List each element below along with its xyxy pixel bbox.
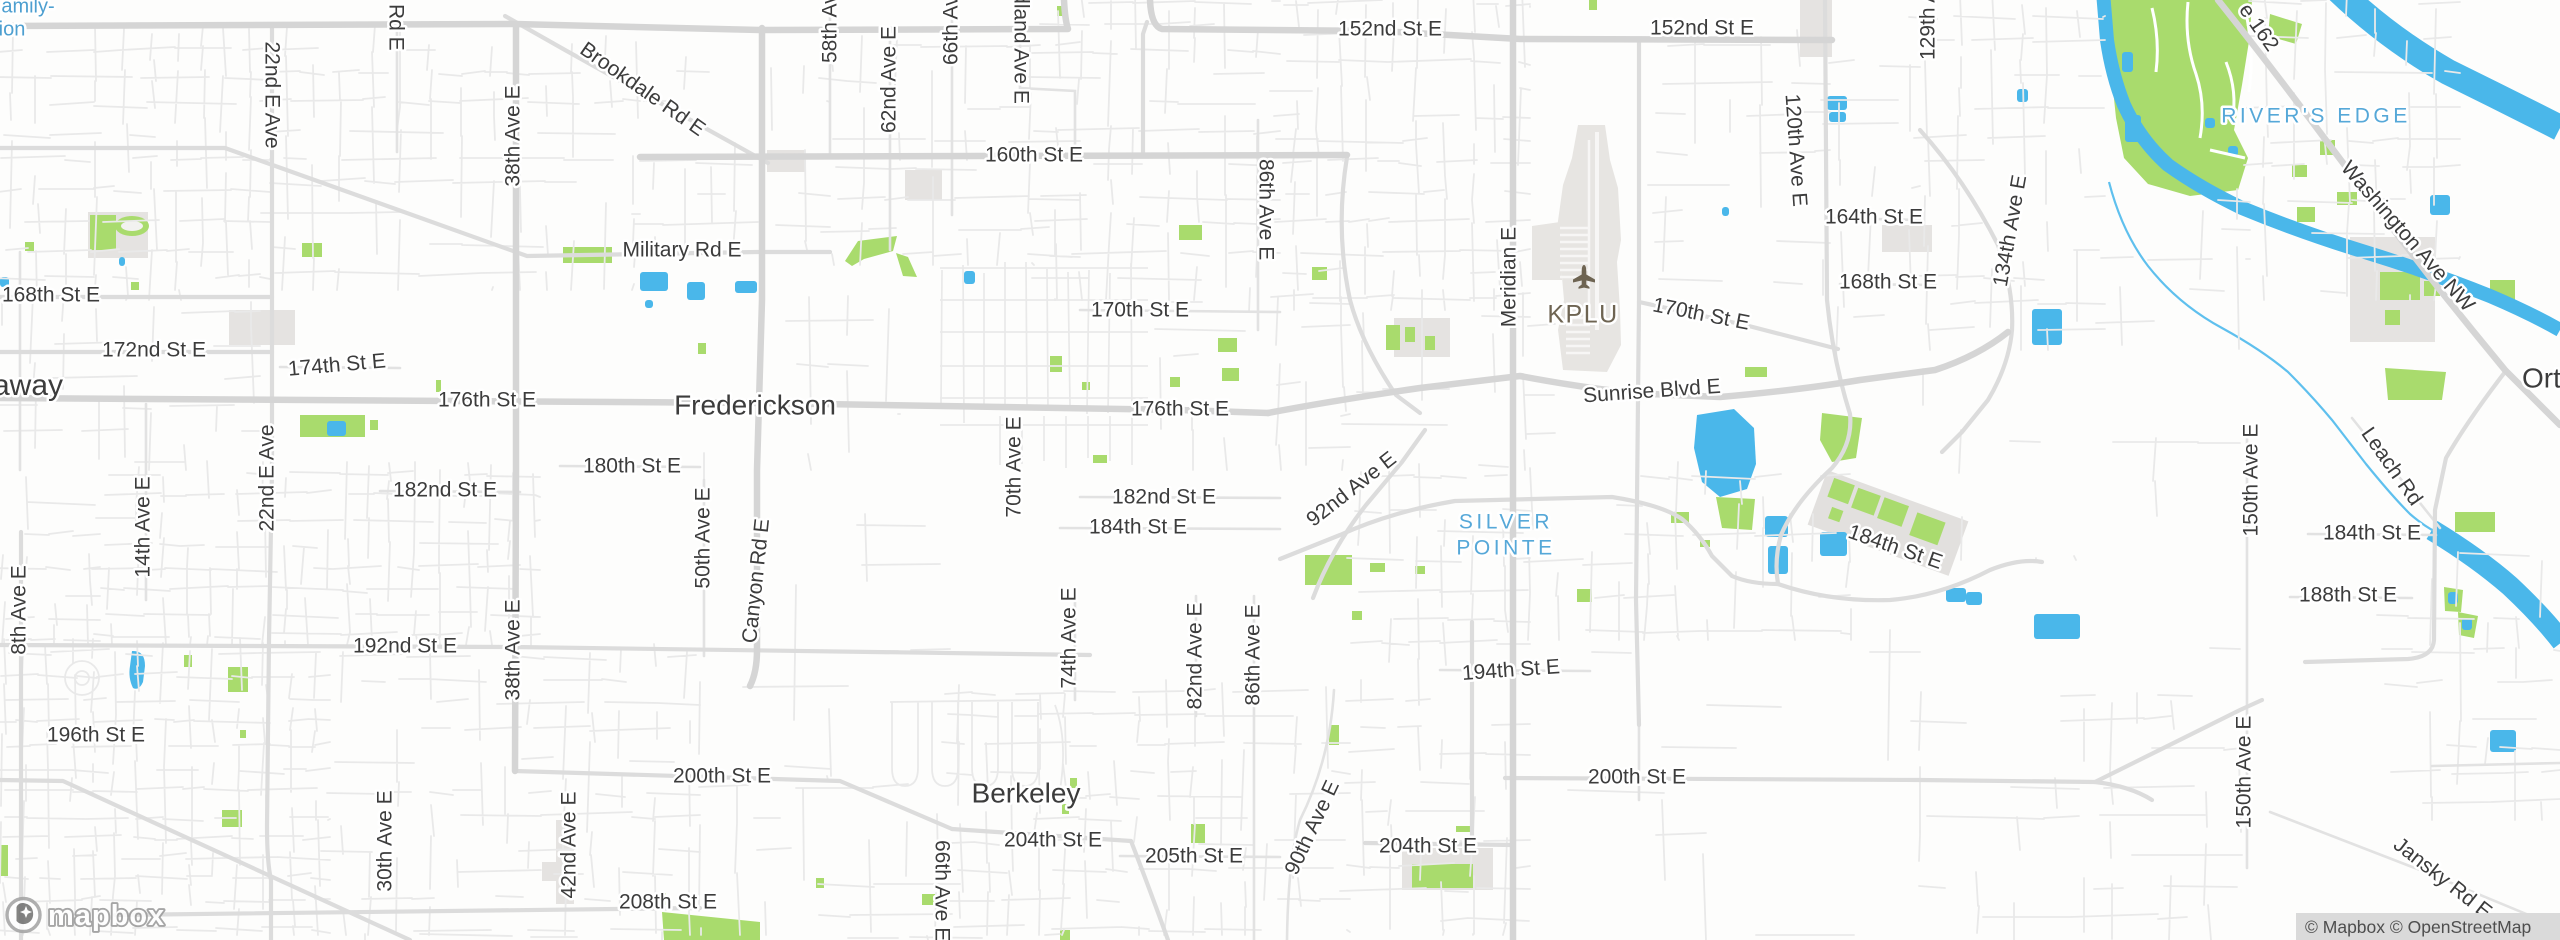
svg-text:200th St E: 200th St E (1588, 766, 1686, 789)
svg-text:Orting: Orting (2522, 362, 2560, 393)
svg-text:38th Ave E: 38th Ave E (502, 599, 525, 700)
svg-text:74th Ave E: 74th Ave E (1058, 587, 1081, 688)
svg-text:160th St E: 160th St E (985, 144, 1083, 167)
svg-text:168th St E: 168th St E (2, 284, 100, 307)
svg-text:ion: ion (0, 18, 25, 40)
svg-text:176th St E: 176th St E (1131, 398, 1229, 421)
svg-text:176th St E: 176th St E (438, 389, 536, 412)
svg-text:152nd St E: 152nd St E (1650, 17, 1754, 40)
svg-text:86th Ave E: 86th Ave E (1254, 159, 1277, 260)
svg-text:Rd E: Rd E (384, 4, 407, 51)
svg-text:58th Ave E: 58th Ave E (819, 0, 842, 63)
svg-text:182nd St E: 182nd St E (1112, 486, 1216, 509)
svg-text:182nd St E: 182nd St E (393, 479, 497, 502)
svg-text:66th Ave E: 66th Ave E (940, 0, 963, 65)
svg-text:Frederickson: Frederickson (674, 389, 836, 420)
svg-text:KPLU: KPLU (1547, 301, 1618, 329)
svg-text:22nd E Ave: 22nd E Ave (256, 424, 279, 531)
svg-text:8th Ave E: 8th Ave E (8, 565, 31, 655)
svg-text:188th St E: 188th St E (2299, 584, 2397, 607)
svg-text:208th St E: 208th St E (619, 891, 717, 914)
svg-text:180th St E: 180th St E (583, 455, 681, 478)
svg-text:Meridian E: Meridian E (1498, 227, 1521, 327)
svg-text:204th St E: 204th St E (1379, 835, 1477, 858)
svg-text:Midland Ave E: Midland Ave E (1009, 0, 1032, 104)
svg-text:© Mapbox © OpenStreetMap: © Mapbox © OpenStreetMap (2305, 917, 2531, 937)
svg-text:mapbox: mapbox (48, 900, 165, 932)
svg-text:38th Ave E: 38th Ave E (502, 85, 525, 186)
svg-text:82nd Ave E: 82nd Ave E (1184, 602, 1207, 709)
svg-text:184th St E: 184th St E (1089, 516, 1187, 539)
svg-text:150th Ave E: 150th Ave E (2240, 424, 2263, 537)
svg-text:42nd Ave E: 42nd Ave E (558, 791, 581, 898)
svg-text:66th Ave E: 66th Ave E (930, 840, 953, 940)
svg-text:SILVER: SILVER (1459, 511, 1553, 534)
svg-text:62nd Ave E: 62nd Ave E (878, 26, 901, 133)
svg-text:away: away (0, 369, 63, 402)
svg-text:205th St E: 205th St E (1145, 845, 1243, 868)
svg-text:RIVER'S EDGE: RIVER'S EDGE (2221, 105, 2411, 128)
svg-text:196th St E: 196th St E (47, 724, 145, 747)
svg-text:129th Ave E: 129th Ave E (1917, 0, 1940, 60)
svg-text:86th Ave E: 86th Ave E (1242, 604, 1265, 705)
svg-text:30th Ave E: 30th Ave E (374, 790, 397, 891)
svg-text:204th St E: 204th St E (1004, 829, 1102, 852)
svg-text:172nd St E: 172nd St E (102, 339, 206, 362)
svg-text:50th Ave E: 50th Ave E (692, 487, 715, 588)
svg-text:150th Ave E: 150th Ave E (2233, 716, 2256, 829)
svg-text:14th Ave E: 14th Ave E (132, 476, 155, 577)
svg-text:22nd E Ave: 22nd E Ave (260, 41, 283, 148)
svg-text:Military Rd E: Military Rd E (622, 239, 741, 262)
svg-text:152nd St E: 152nd St E (1338, 18, 1442, 41)
svg-text:184th St E: 184th St E (2323, 522, 2421, 545)
svg-text:Berkeley: Berkeley (972, 777, 1081, 808)
svg-text:70th Ave E: 70th Ave E (1003, 416, 1026, 517)
svg-text:164th St E: 164th St E (1825, 206, 1923, 229)
svg-text:POINTE: POINTE (1456, 537, 1555, 560)
svg-text:168th St E: 168th St E (1839, 271, 1937, 294)
svg-text:192nd St E: 192nd St E (353, 635, 457, 658)
svg-text:200th St E: 200th St E (673, 765, 771, 788)
svg-text:amily-: amily- (1, 0, 54, 17)
svg-text:170th St E: 170th St E (1091, 299, 1189, 322)
